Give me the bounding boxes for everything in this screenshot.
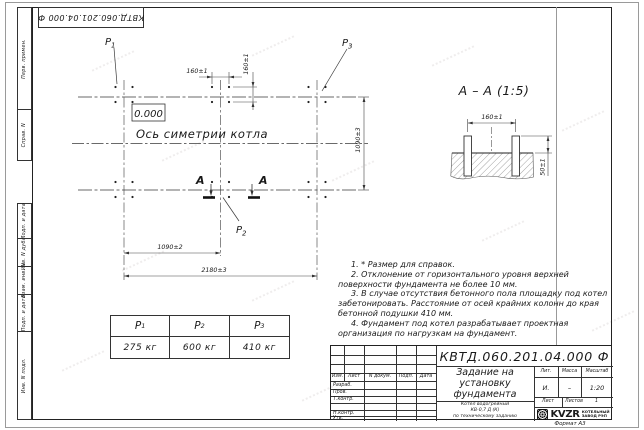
anchor-bolt-left <box>464 136 472 176</box>
drawing-sheet: КВТД.060.201.04.000 Ф Перв. примен. Спра… <box>0 0 644 430</box>
plan-view <box>72 80 368 280</box>
lit-label: Лит. <box>534 369 558 374</box>
p3-leader <box>322 49 347 91</box>
cut-letter-left: А <box>195 174 205 187</box>
col-sign: Подп. <box>396 374 416 379</box>
section-dim-160: 160±1 <box>481 114 502 121</box>
col-izm: Изм. <box>331 374 344 379</box>
load-table: P1 P2 P3 275 кг 600 кг 410 кг <box>110 315 290 359</box>
sheets-label: Листов <box>565 399 583 404</box>
load-table-header-p1: P1 <box>111 316 170 337</box>
mass-label: Масса <box>558 369 581 374</box>
dim-2180-full-span: 2180±3 <box>201 267 226 274</box>
company-logo: KVZR КОТЕЛЬНЫЙ ЗАВОД РЭП <box>534 407 613 421</box>
section-dim-arrows <box>468 122 550 153</box>
load-table-header-p3: P3 <box>230 316 289 337</box>
col-date: Дата <box>416 374 436 379</box>
document-designation: КВТД.060.201.04.000 Ф <box>436 346 613 366</box>
symmetry-axis-label: Ось симетрии котла <box>136 127 268 141</box>
product-line: по техническому заданию <box>453 414 517 420</box>
load-table-header-p2: P2 <box>170 316 229 337</box>
kvzr-emblem-icon <box>537 409 548 420</box>
section-dim-50: 50±1 <box>540 158 547 175</box>
kvzr-logo-text: KVZR <box>550 409 579 420</box>
dim-1090-half-span: 1090±2 <box>157 244 182 251</box>
section-cut-marks <box>203 184 260 198</box>
dim-160-vertical: 160±1 <box>243 53 250 74</box>
load-value-p3: 410 кг <box>230 337 289 358</box>
row-utv: Утв. <box>333 416 343 421</box>
title-line: Задание на <box>456 367 514 378</box>
scale-value: 1:20 <box>581 384 613 392</box>
cut-letter-right: А <box>258 174 268 187</box>
elevation-value: 0.000 <box>134 109 163 120</box>
section-title: А – А (1:5) <box>458 83 530 98</box>
technical-notes: 1. * Размер для справок. 2. Отклонение о… <box>338 260 612 338</box>
concrete-hatch <box>451 153 534 179</box>
format-label: Формат А3 <box>535 421 605 427</box>
p1-point-label: P1 <box>105 37 116 50</box>
row-nkontr: Н.контр. <box>333 411 354 416</box>
note-4: 4. Фундамент под котел разрабатывает про… <box>338 319 612 339</box>
load-value-p2: 600 кг <box>170 337 229 358</box>
anchor-bolt-right <box>512 136 520 176</box>
col-doc: N докум. <box>364 374 396 379</box>
product-name: Котел водогрейный КВ-0,7 Д (К) по технич… <box>436 401 534 421</box>
note-1: 1. * Размер для справок. <box>338 260 612 270</box>
sheet-label: Лист <box>534 399 562 404</box>
section-view <box>451 119 552 179</box>
p2-point-label: P2 <box>236 225 247 238</box>
scale-label: Масштаб <box>581 369 613 374</box>
row-razrab: Разраб. <box>333 383 352 388</box>
sheets-value: 1 <box>595 399 598 404</box>
note-3: 3. В случае отсутствия бетонного пола пл… <box>338 289 612 318</box>
row-prov: Пров. <box>333 390 347 395</box>
title-line: фундамента <box>454 389 517 400</box>
lit-value: И. <box>534 384 558 392</box>
dim-1090-row-span: 1090±3 <box>355 127 362 152</box>
title-block: КВТД.060.201.04.000 Ф Изм. Лист N докум.… <box>330 345 612 420</box>
row-tkontr: Т.контр. <box>333 397 354 402</box>
dim-160-horizontal: 160±1 <box>186 68 207 75</box>
p3-point-label: P3 <box>342 38 353 51</box>
company-line: ЗАВОД РЭП <box>582 414 610 418</box>
company-name: КОТЕЛЬНЫЙ ЗАВОД РЭП <box>582 410 610 419</box>
col-list: Лист <box>344 374 364 379</box>
p2-leader <box>223 198 239 222</box>
mass-value: – <box>558 384 581 392</box>
p1-leader <box>114 48 117 84</box>
load-value-p1: 275 кг <box>111 337 170 358</box>
note-2: 2. Отклонение от горизонтального уровня … <box>338 270 612 290</box>
document-title: Задание на установку фундамента <box>436 366 534 401</box>
title-line: установку <box>459 378 510 389</box>
